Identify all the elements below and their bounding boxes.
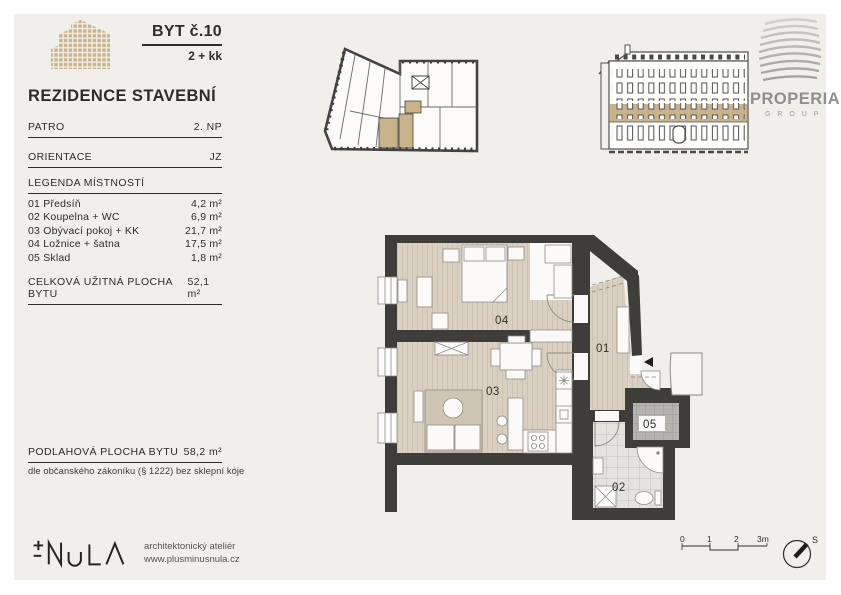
window-row-1-highlighted (612, 103, 745, 119)
scale-3m: 3m (757, 534, 769, 544)
scale-0: 0 (680, 534, 685, 544)
floor-value: 2. NP (194, 121, 222, 133)
legend-row: 03 Obývací pokoj + KK 21,7 m² (28, 225, 222, 238)
dining-table (500, 343, 532, 370)
bar-stool (497, 416, 507, 426)
unit-layout: 2 + kk (142, 49, 222, 63)
studio-block: architektonický ateliér www.plusminusnul… (28, 536, 240, 570)
usable-area-value: 52,1 m² (187, 276, 222, 300)
legend-row: 05 Sklad 1,8 m² (28, 252, 222, 265)
compass-north-label: S (812, 535, 818, 545)
side-facade (601, 63, 609, 149)
chair (532, 349, 541, 366)
floor-area-note: dle občanského zákoníku (§ 1222) bez skl… (28, 466, 268, 476)
brand-name: PROPERIA (750, 90, 839, 108)
legend-title: LEGENDA MÍSTNOSTÍ (28, 177, 222, 194)
living-window-2 (378, 413, 397, 443)
orientation-value: JZ (210, 151, 222, 163)
divider (142, 44, 222, 46)
living-door-gap (574, 353, 588, 380)
stove (528, 432, 548, 451)
room-name: 05 Sklad (28, 252, 70, 265)
room-name: 01 Předsíň (28, 198, 81, 211)
label-room-04: 04 (495, 315, 509, 327)
letter-a (106, 544, 123, 565)
floor-area-value: 58,2 m² (184, 446, 222, 458)
scale-1: 1 (707, 534, 712, 544)
compass: S (784, 535, 819, 568)
pillow (486, 247, 505, 261)
radiator (398, 280, 407, 302)
sink-asterisk-icon (559, 376, 569, 386)
bar-stool (497, 434, 507, 444)
nightstand (508, 247, 524, 260)
legend-row: 02 Koupelna + WC 6,9 m² (28, 211, 222, 224)
elevator-core (412, 76, 429, 89)
radiator (414, 391, 423, 422)
entrance-door-gap (630, 356, 642, 374)
toilet-tank (655, 491, 661, 505)
label-room-01: 01 (596, 343, 610, 355)
letter-n (49, 543, 61, 565)
letter-u (69, 552, 81, 566)
room-name: 03 Obývací pokoj + KK (28, 225, 139, 238)
entrance-arrow-icon (644, 357, 653, 367)
room-name: 04 Ložnice + šatna (28, 238, 120, 251)
room-area: 21,7 m² (185, 225, 222, 238)
windows (378, 277, 397, 443)
brochure-page: { "header": { "unit_label": "BYT č.10", … (0, 0, 841, 595)
unit-number: BYT č.10 (142, 23, 222, 41)
room-area: 1,8 m² (191, 252, 222, 265)
usable-area-row: CELKOVÁ UŽITNÁ PLOCHA BYTU 52,1 m² (28, 276, 222, 305)
overview-floorplan (320, 19, 482, 159)
studio-line1: architektonický ateliér (144, 540, 240, 553)
floor-area-label: PODLAHOVÁ PLOCHA BYTU (28, 446, 178, 458)
entrance-landing (670, 353, 702, 395)
building-elevation: PROPERIA G R O U P (593, 16, 839, 158)
nightstand (443, 249, 459, 262)
stool (432, 313, 448, 329)
orientation-row: ORIENTACE JZ (28, 151, 222, 168)
chair (491, 349, 500, 366)
label-room-03: 03 (486, 386, 500, 398)
scale-bar: 0 1 2 3m (680, 534, 769, 550)
orientation-label: ORIENTACE (28, 151, 92, 163)
kitchen-island (508, 398, 523, 450)
bedroom-door-gap (574, 295, 588, 323)
sofa-cushion (427, 425, 454, 450)
usable-area-label: CELKOVÁ UŽITNÁ PLOCHA BYTU (28, 276, 187, 300)
bedroom-window (378, 277, 397, 304)
chair (506, 370, 525, 379)
room-area: 4,2 m² (191, 198, 222, 211)
scale-2: 2 (734, 534, 739, 544)
legend-row: 01 Předsíň 4,2 m² (28, 198, 222, 211)
scale-bar-line (682, 546, 767, 550)
unit-title-block: BYT č.10 2 + kk (142, 23, 222, 63)
studio-line2: www.plusminusnula.cz (144, 553, 240, 566)
shower-head (657, 452, 660, 455)
chair (508, 336, 525, 343)
floor-label: PATRO (28, 121, 65, 133)
plusminusnula-logo (28, 536, 130, 570)
residence-pixel-logo (44, 19, 118, 77)
plus-icon (34, 541, 43, 550)
toilet (635, 492, 653, 505)
room-area: 6,9 m² (191, 211, 222, 224)
entrance-portal (673, 126, 685, 143)
room-area: 17,5 m² (185, 238, 222, 251)
fridge (556, 406, 572, 423)
living-window-1 (378, 348, 397, 376)
floor-row: PATRO 2. NP (28, 121, 222, 138)
closet-cabinet (530, 330, 572, 342)
wardrobe-top (545, 245, 571, 263)
wardrobe-right (554, 265, 572, 298)
floor-area-row: PODLAHOVÁ PLOCHA BYTU 58,2 m² (28, 446, 222, 463)
compass-needle-icon (795, 544, 807, 557)
legend-row: 04 Ložnice + šatna 17,5 m² (28, 238, 222, 251)
coffee-table (443, 398, 463, 418)
page-background: BYT č.10 2 + kk REZIDENCE STAVEBNÍ PATRO… (14, 14, 826, 580)
desk (417, 277, 432, 307)
main-floorplan: 04 03 01 05 02 0 1 2 3m S (375, 225, 835, 585)
label-room-02: 02 (612, 482, 626, 494)
chimney (625, 45, 630, 54)
room-legend-list: 01 Předsíň 4,2 m² 02 Koupelna + WC 6,9 m… (28, 198, 222, 265)
window-row-3 (612, 69, 745, 85)
brand-sub: G R O U P (765, 111, 821, 118)
room-name: 02 Koupelna + WC (28, 211, 120, 224)
window-row-2 (612, 85, 745, 101)
label-room-05: 05 (643, 419, 657, 431)
project-title: REZIDENCE STAVEBNÍ (28, 87, 216, 106)
properia-logo: PROPERIA G R O U P (750, 19, 839, 118)
pillow (464, 247, 484, 261)
letter-l (89, 545, 100, 565)
bathroom-sink (593, 458, 603, 474)
sofa-cushion (455, 425, 480, 450)
hall-closet (617, 307, 629, 353)
properia-arcs-icon (759, 19, 821, 80)
bathroom-door-gap (595, 411, 619, 421)
studio-text: architektonický ateliér www.plusminusnul… (144, 540, 240, 566)
building-icon (51, 20, 110, 69)
